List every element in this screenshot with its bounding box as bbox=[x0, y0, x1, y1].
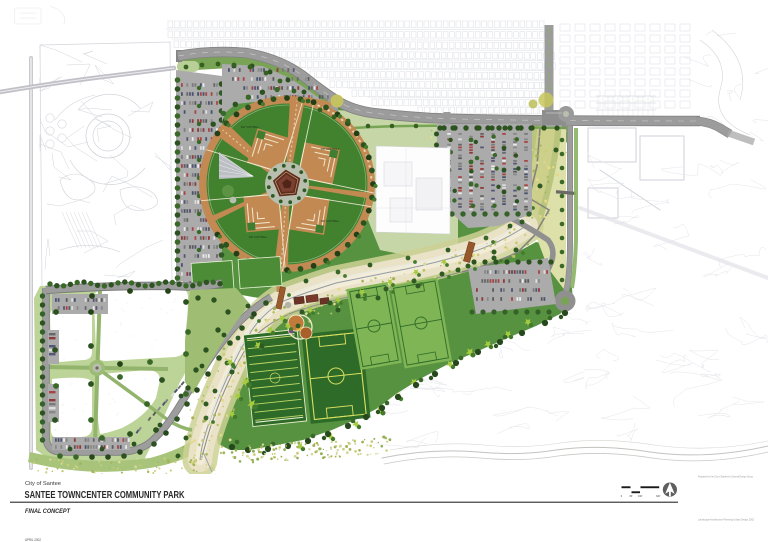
svg-text:80': 80' bbox=[630, 495, 634, 498]
svg-text:Prepared for the City of Sante: Prepared for the City of Santee by Schmi… bbox=[698, 475, 753, 479]
svg-text:300' SOFTBALL: 300' SOFTBALL bbox=[241, 125, 260, 129]
svg-text:160': 160' bbox=[638, 495, 643, 498]
svg-text:300' SOFTBALL: 300' SOFTBALL bbox=[321, 219, 340, 223]
svg-text:300' SOFTBALL: 300' SOFTBALL bbox=[321, 147, 340, 151]
svg-text:Landscape Architecture Plannin: Landscape Architecture Planning Urban De… bbox=[698, 518, 755, 522]
svg-text:SANTEE TOWNCENTER COMMUNITY PA: SANTEE TOWNCENTER COMMUNITY PARK bbox=[25, 489, 185, 501]
svg-text:City of Santee: City of Santee bbox=[25, 481, 61, 487]
svg-text:320': 320' bbox=[656, 495, 661, 498]
svg-text:APRIL 2002: APRIL 2002 bbox=[25, 538, 41, 542]
svg-text:FINAL CONCEPT: FINAL CONCEPT bbox=[25, 508, 71, 515]
svg-text:300' SOFTBALL: 300' SOFTBALL bbox=[249, 235, 268, 239]
